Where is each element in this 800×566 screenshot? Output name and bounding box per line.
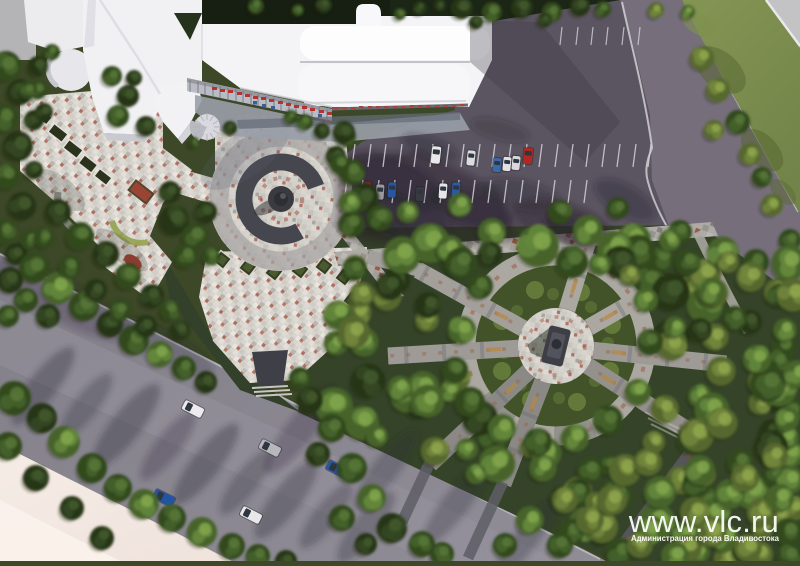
svg-text:Администрация города Владивост: Администрация города Владивостока bbox=[631, 534, 780, 543]
